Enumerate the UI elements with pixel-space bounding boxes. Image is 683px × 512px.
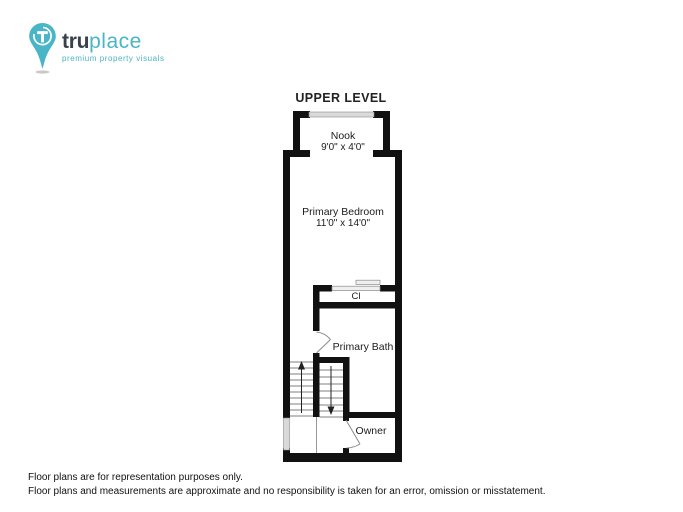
room-label-closet: Cl — [316, 292, 396, 302]
room-label-primary-bedroom: Primary Bedroom 11'0" x 14'0" — [263, 206, 423, 230]
room-label-owner: Owner — [331, 425, 411, 437]
room-label-primary-bath: Primary Bath — [303, 341, 423, 353]
disclaimer-line-2: Floor plans and measurements are approxi… — [28, 485, 545, 499]
stairs-up-arrow — [298, 361, 305, 413]
page: truplace premium property visuals UPPER … — [0, 0, 683, 512]
disclaimer-line-1: Floor plans are for representation purpo… — [28, 471, 545, 485]
stairs-down-arrow — [328, 366, 335, 415]
disclaimer: Floor plans are for representation purpo… — [28, 471, 545, 498]
room-label-nook: Nook 9'0" x 4'0" — [263, 130, 423, 154]
sliding-door-closet — [332, 280, 380, 290]
window-left-wall — [284, 418, 290, 450]
room-name: Nook — [263, 130, 423, 142]
window-nook — [309, 112, 374, 117]
room-name: Primary Bedroom — [263, 206, 423, 218]
room-dimensions: 11'0" x 14'0" — [263, 218, 423, 230]
room-dimensions: 9'0" x 4'0" — [263, 142, 423, 154]
